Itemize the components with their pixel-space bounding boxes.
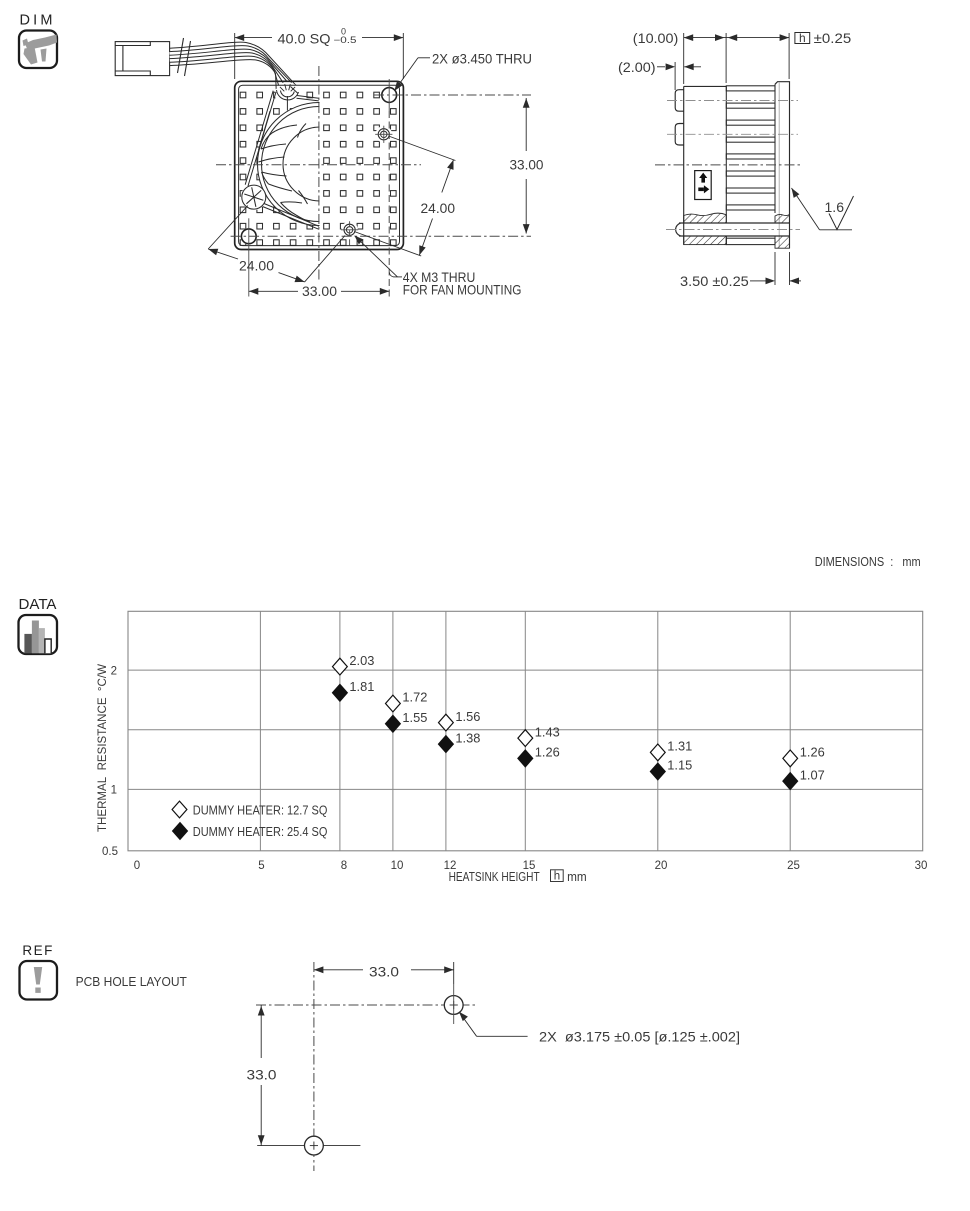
svg-text:33.0: 33.0 <box>369 964 399 980</box>
svg-text:1.72: 1.72 <box>402 691 427 705</box>
svg-text:2X ø3.175 ±0.05 [ø.125 ±.002]: 2X ø3.175 ±0.05 [ø.125 ±.002] <box>539 1030 740 1045</box>
svg-text:1.26: 1.26 <box>535 746 560 760</box>
svg-text:25: 25 <box>787 860 800 872</box>
svg-text:(2.00): (2.00) <box>618 59 656 75</box>
svg-text:5: 5 <box>258 860 264 872</box>
svg-text:h: h <box>554 871 560 883</box>
svg-text:40.0 SQ: 40.0 SQ <box>278 31 331 47</box>
svg-text:33.00: 33.00 <box>510 157 544 173</box>
svg-text:2.03: 2.03 <box>349 654 374 668</box>
svg-text:24.00: 24.00 <box>239 258 274 274</box>
svg-text:3.50 ±0.25: 3.50 ±0.25 <box>680 273 749 289</box>
svg-text:FOR FAN MOUNTING: FOR FAN MOUNTING <box>403 281 522 297</box>
svg-text:1.07: 1.07 <box>800 768 825 782</box>
svg-text:THERMAL RESISTANCE °C/W: THERMAL RESISTANCE °C/W <box>95 663 109 832</box>
svg-text:DIM: DIM <box>20 13 56 29</box>
svg-text:30: 30 <box>915 860 928 872</box>
svg-text:1.81: 1.81 <box>349 680 374 694</box>
svg-text:33.0: 33.0 <box>247 1067 277 1083</box>
svg-text:±0.25: ±0.25 <box>814 30 852 46</box>
svg-text:1.6: 1.6 <box>825 199 845 215</box>
svg-text:0.5: 0.5 <box>102 846 118 858</box>
svg-text:0: 0 <box>134 860 140 872</box>
svg-text:24.00: 24.00 <box>421 200 456 216</box>
svg-text:REF: REF <box>22 943 54 958</box>
svg-text:1.26: 1.26 <box>800 746 825 760</box>
svg-text:2: 2 <box>111 665 117 677</box>
svg-text:1.38: 1.38 <box>455 731 480 745</box>
svg-text:10: 10 <box>391 860 404 872</box>
svg-text:HEATSINK HEIGHT: HEATSINK HEIGHT <box>449 870 540 884</box>
svg-text:2X ø3.450 THRU: 2X ø3.450 THRU <box>432 51 532 67</box>
svg-text:1.31: 1.31 <box>667 740 692 754</box>
svg-text:20: 20 <box>655 860 668 872</box>
svg-text:mm: mm <box>567 870 587 884</box>
svg-text:DUMMY HEATER: 25.4 SQ: DUMMY HEATER: 25.4 SQ <box>193 825 328 839</box>
svg-text:1.15: 1.15 <box>667 759 692 773</box>
svg-text:1: 1 <box>111 785 117 797</box>
svg-text:DATA: DATA <box>19 596 57 613</box>
svg-text:1.43: 1.43 <box>535 725 560 739</box>
svg-text:1.55: 1.55 <box>402 711 427 725</box>
svg-text:(10.00): (10.00) <box>633 30 679 46</box>
svg-text:33.00: 33.00 <box>302 283 337 299</box>
svg-text:PCB HOLE LAYOUT: PCB HOLE LAYOUT <box>76 975 188 989</box>
svg-text:h: h <box>799 31 806 45</box>
svg-text:8: 8 <box>341 860 347 872</box>
svg-text:−0.5: −0.5 <box>334 35 357 45</box>
svg-text:DIMENSIONS : mm: DIMENSIONS : mm <box>815 554 921 569</box>
svg-text:1.56: 1.56 <box>455 710 480 724</box>
svg-text:DUMMY HEATER: 12.7 SQ: DUMMY HEATER: 12.7 SQ <box>193 804 328 818</box>
